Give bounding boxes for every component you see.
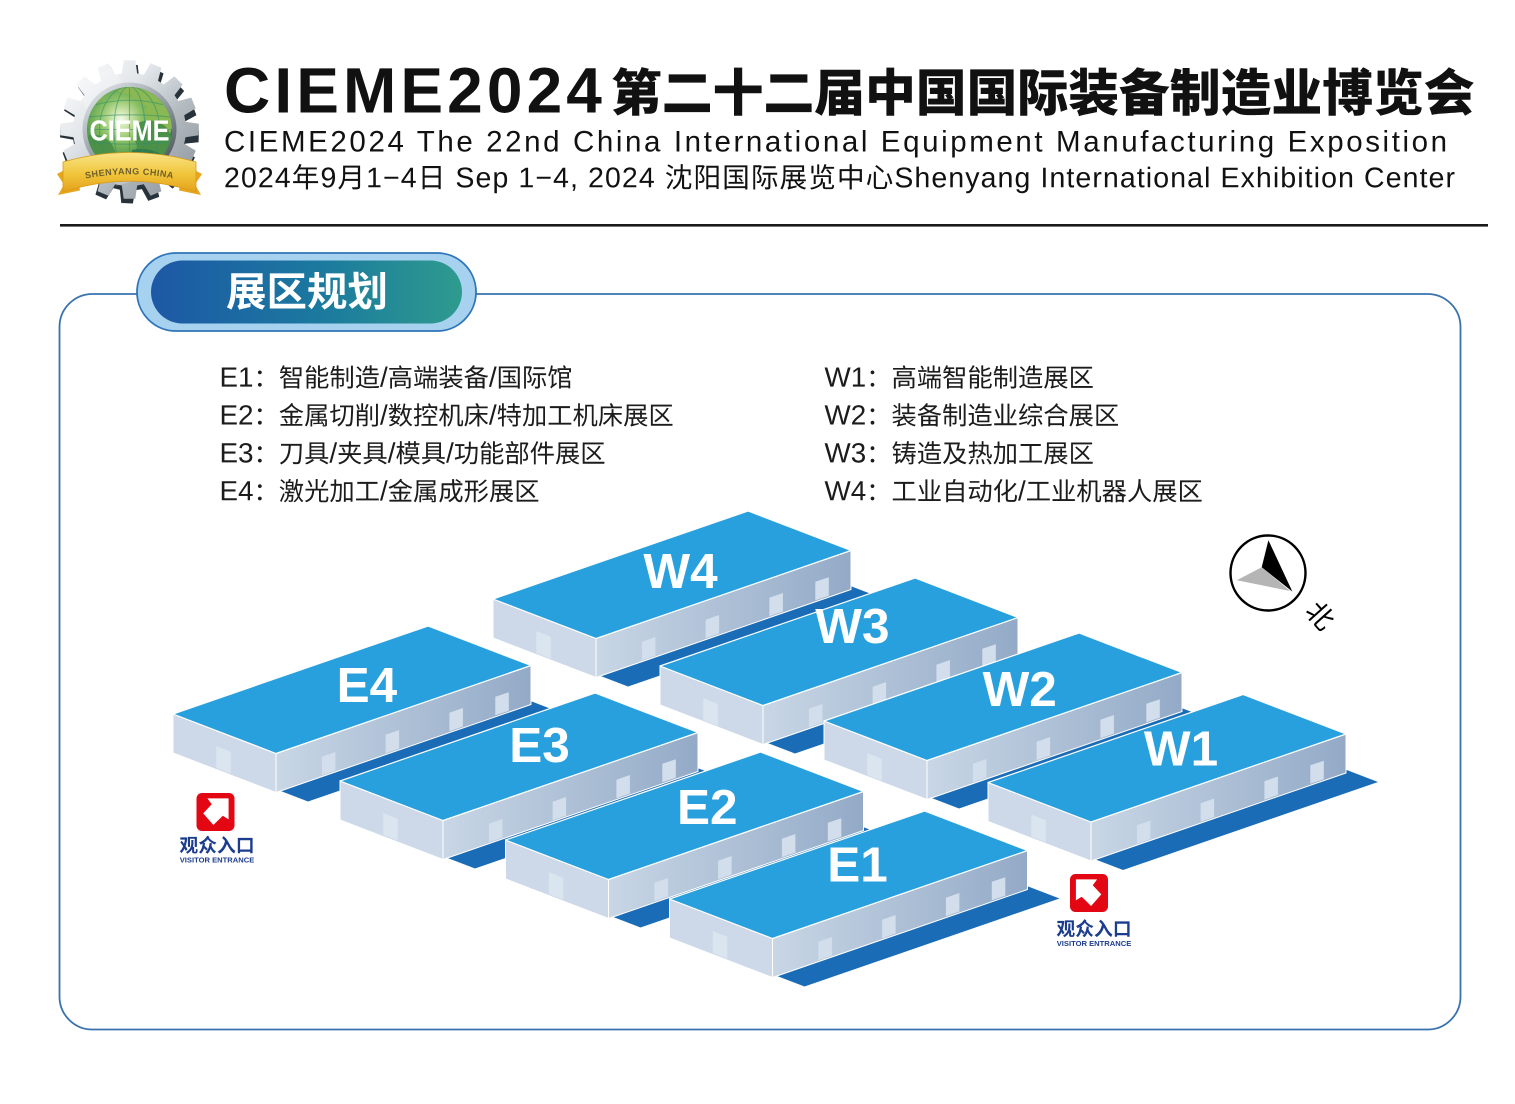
svg-text:VISITOR ENTRANCE: VISITOR ENTRANCE (180, 856, 255, 865)
svg-text:E1: E1 (827, 837, 888, 892)
svg-text:W3: W3 (815, 599, 889, 654)
svg-text:E2: E2 (677, 780, 738, 835)
svg-text:W1: W1 (1144, 721, 1218, 776)
svg-text:W2: W2 (983, 662, 1057, 717)
svg-text:E4: E4 (337, 658, 398, 713)
svg-text:E3: E3 (509, 718, 570, 773)
svg-text:CIEME2024: CIEME2024 (224, 55, 606, 127)
svg-text:CIEME2024 The 22nd China Inter: CIEME2024 The 22nd China International E… (224, 126, 1450, 159)
svg-text:VISITOR ENTRANCE: VISITOR ENTRANCE (1057, 939, 1132, 948)
svg-text:W4: W4 (643, 544, 718, 599)
svg-text:CIEME: CIEME (90, 116, 170, 148)
